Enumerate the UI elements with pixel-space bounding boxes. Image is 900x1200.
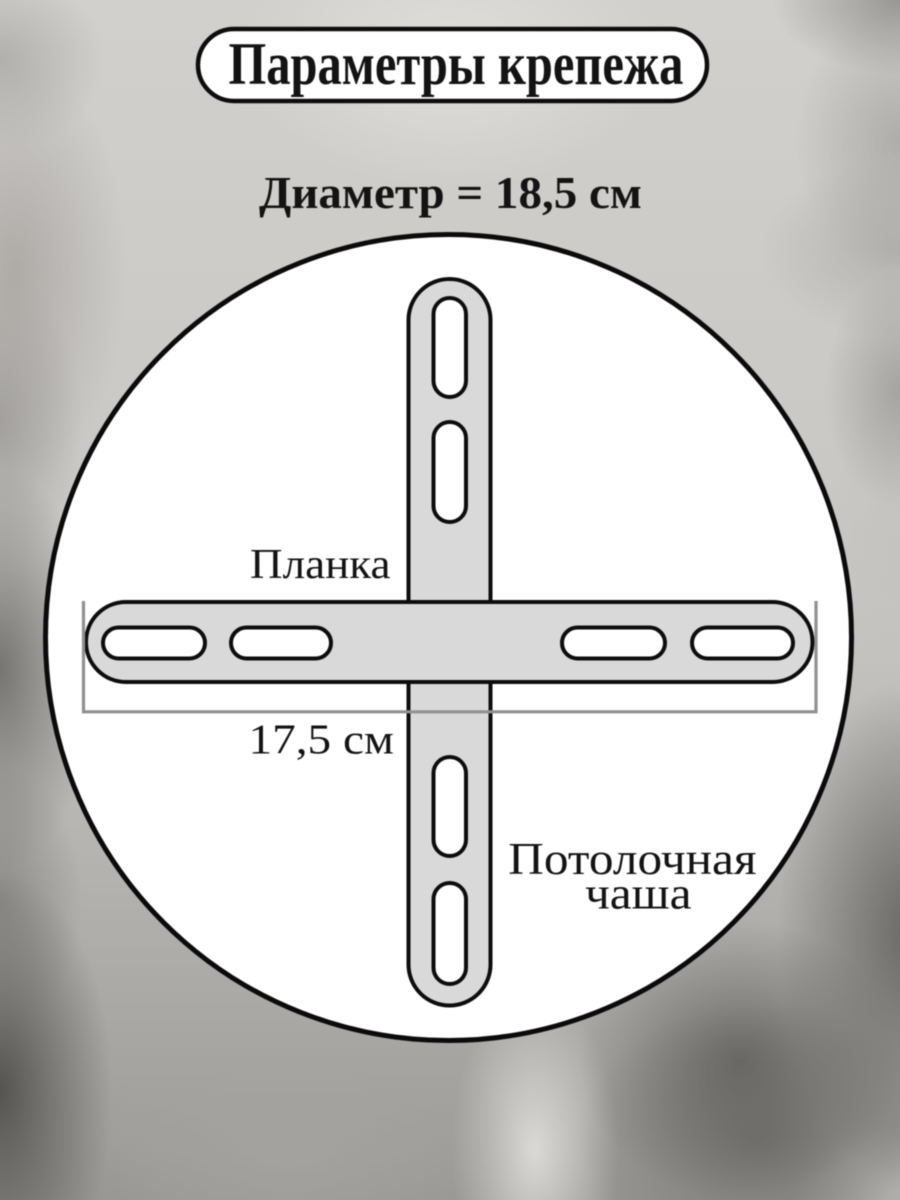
svg-text:Диаметр = 18,5 см: Диаметр = 18,5 см (259, 168, 642, 218)
svg-text:Планка: Планка (250, 541, 391, 587)
svg-text:чаша: чаша (585, 869, 692, 919)
svg-text:Параметры крепежа: Параметры крепежа (229, 30, 684, 97)
svg-text:17,5 см: 17,5 см (249, 716, 394, 763)
